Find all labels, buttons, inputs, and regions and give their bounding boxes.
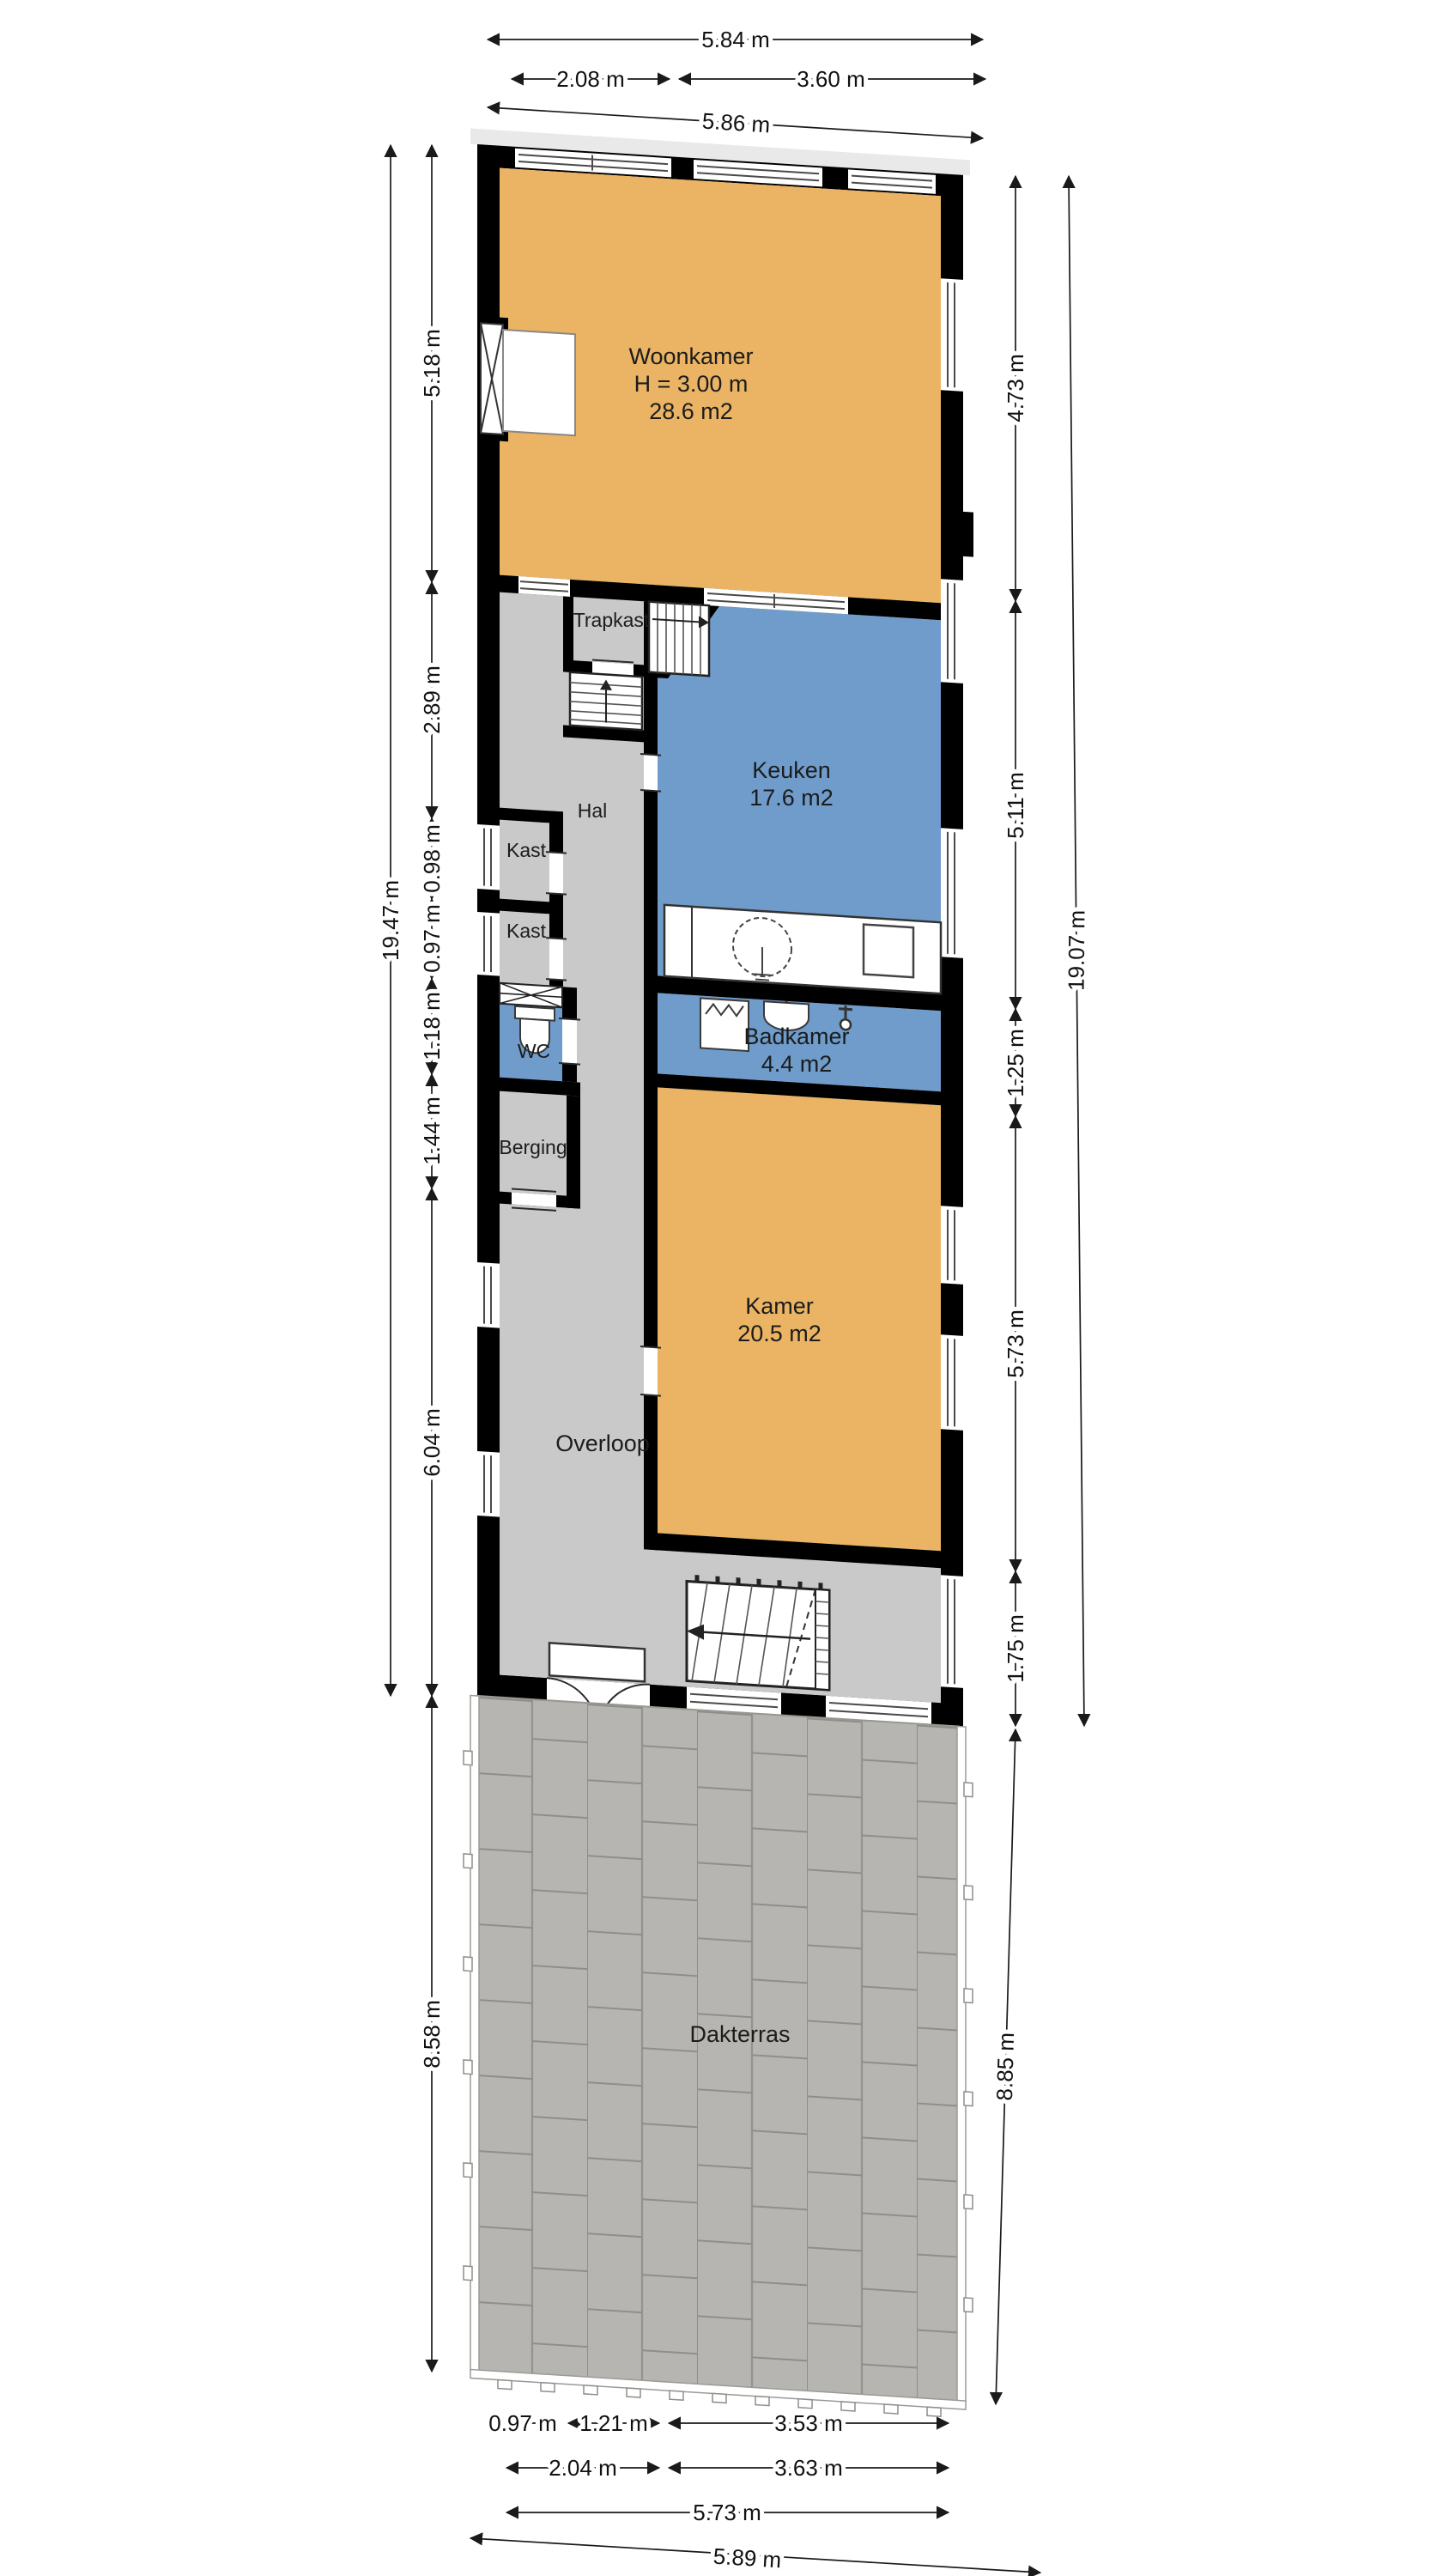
svg-text:3.63 m: 3.63 m bbox=[774, 2455, 843, 2481]
cabinet bbox=[503, 330, 575, 435]
room-kamer bbox=[658, 1087, 941, 1551]
wc-vent-hatch bbox=[500, 983, 562, 1008]
dim-left-overloop: 6.04 m bbox=[419, 1188, 445, 1696]
dim-bottom-seg-1: 0.97 m bbox=[488, 2410, 558, 2436]
chimney-niche bbox=[477, 316, 575, 446]
mat bbox=[549, 1643, 645, 1681]
svg-text:5.18 m: 5.18 m bbox=[419, 329, 445, 398]
svg-text:2.89 m: 2.89 m bbox=[419, 665, 445, 734]
window-right-keuken-1 bbox=[941, 579, 963, 683]
dim-top-overall: 5.84 m bbox=[488, 27, 983, 52]
svg-text:19.47 m: 19.47 m bbox=[378, 880, 403, 961]
dim-right-woonkamer: 4.73 m bbox=[1003, 176, 1028, 601]
dim-right-terrace: 8.85 m bbox=[991, 1729, 1019, 2404]
dim-bottom-seg-3: 3.53 m bbox=[669, 2410, 949, 2436]
dim-left-wc: 1.18 m bbox=[419, 979, 445, 1074]
svg-text:0.97 m: 0.97 m bbox=[488, 2410, 557, 2436]
svg-text:19.07 m: 19.07 m bbox=[1064, 910, 1090, 991]
washer-icon bbox=[700, 998, 749, 1051]
window-right-kamer-2 bbox=[941, 1334, 963, 1431]
svg-text:1.44 m: 1.44 m bbox=[419, 1097, 445, 1165]
window-left-kast-1 bbox=[477, 824, 500, 890]
terrace-floor bbox=[477, 1696, 959, 2403]
label-keuken-area: 17.6 m2 bbox=[749, 785, 834, 811]
window-interior-hal bbox=[518, 576, 570, 597]
dim-top-slanted: 5.86 m bbox=[488, 107, 983, 138]
label-woonkamer-area: 28.6 m2 bbox=[649, 398, 733, 424]
dim-bottom-inner: 5.73 m bbox=[506, 2500, 949, 2525]
dim-right-stairzone: 1.75 m bbox=[1003, 1571, 1028, 1726]
dim-left-woonkamer: 5.18 m bbox=[419, 145, 445, 582]
stairs-down bbox=[687, 1574, 829, 1690]
dim-left-terrace: 8.58 m bbox=[419, 1696, 445, 2372]
label-hal: Hal bbox=[578, 799, 608, 822]
window-left-kast-2 bbox=[477, 912, 500, 976]
svg-text:4.73 m: 4.73 m bbox=[1003, 354, 1028, 422]
floor-plan-page: Woonkamer H = 3.00 m 28.6 m2 Trapkast Ke… bbox=[0, 0, 1449, 2576]
dim-left-hal: 2.89 m bbox=[419, 582, 445, 818]
svg-text:8.85 m: 8.85 m bbox=[991, 2032, 1019, 2101]
dim-bottom-seg-2: 1.21 m bbox=[568, 2410, 659, 2436]
svg-text:5.73 m: 5.73 m bbox=[693, 2500, 761, 2525]
dim-right-badkamer: 1.25 m bbox=[1003, 1009, 1028, 1116]
label-kamer: Kamer bbox=[745, 1293, 814, 1319]
label-woonkamer-height: H = 3.00 m bbox=[634, 371, 749, 397]
label-badkamer-area: 4.4 m2 bbox=[761, 1051, 833, 1077]
window-right-keuken-2 bbox=[941, 828, 963, 958]
label-badkamer: Badkamer bbox=[743, 1024, 849, 1049]
dim-right-overall: 19.07 m bbox=[1064, 176, 1090, 1726]
svg-text:2.04 m: 2.04 m bbox=[549, 2455, 617, 2481]
building-group bbox=[464, 128, 973, 2419]
dim-bottom-seg-5: 3.63 m bbox=[669, 2455, 949, 2481]
svg-text:1.18 m: 1.18 m bbox=[419, 992, 445, 1060]
svg-text:0.97 m: 0.97 m bbox=[419, 904, 445, 973]
stairs-upper bbox=[649, 602, 709, 676]
svg-text:5.86 m: 5.86 m bbox=[701, 108, 771, 138]
label-berging: Berging bbox=[499, 1136, 567, 1158]
dim-top-right-part: 3.60 m bbox=[679, 66, 985, 92]
terrace bbox=[464, 1695, 973, 2419]
label-kast-1: Kast bbox=[506, 839, 547, 861]
dim-right-kamer: 5.73 m bbox=[1003, 1116, 1028, 1571]
dim-top-left-part: 2.08 m bbox=[512, 66, 670, 92]
svg-text:0.98 m: 0.98 m bbox=[419, 824, 445, 893]
stairs-mid bbox=[570, 672, 642, 730]
label-kast-2: Kast bbox=[506, 920, 547, 942]
svg-text:1.75 m: 1.75 m bbox=[1003, 1614, 1028, 1683]
window-left-overloop-1 bbox=[477, 1262, 500, 1328]
svg-text:5.89 m: 5.89 m bbox=[712, 2543, 782, 2573]
label-woonkamer: Woonkamer bbox=[628, 343, 753, 369]
label-trapkast: Trapkast bbox=[573, 609, 650, 631]
floor-plan-drawing: Woonkamer H = 3.00 m 28.6 m2 Trapkast Ke… bbox=[0, 0, 1449, 2576]
dim-left-kast-2: 0.97 m bbox=[419, 899, 445, 979]
dim-right-keuken: 5.11 m bbox=[1003, 601, 1028, 1009]
svg-text:2.08 m: 2.08 m bbox=[556, 66, 625, 92]
label-keuken: Keuken bbox=[752, 757, 831, 783]
svg-text:5.11 m: 5.11 m bbox=[1003, 772, 1028, 839]
svg-text:5.84 m: 5.84 m bbox=[701, 27, 770, 52]
svg-text:1.25 m: 1.25 m bbox=[1003, 1029, 1028, 1097]
svg-text:8.58 m: 8.58 m bbox=[419, 2000, 445, 2069]
window-right-overloop bbox=[941, 1575, 963, 1688]
dim-bottom-overall: 5.89 m bbox=[470, 2538, 1040, 2573]
dim-bottom-seg-4: 2.04 m bbox=[506, 2455, 659, 2481]
svg-text:5.73 m: 5.73 m bbox=[1003, 1309, 1028, 1378]
label-dakterras: Dakterras bbox=[689, 2021, 790, 2047]
dim-left-kast-1: 0.98 m bbox=[419, 818, 445, 899]
svg-text:3.60 m: 3.60 m bbox=[797, 66, 865, 92]
window-left-overloop-2 bbox=[477, 1451, 500, 1517]
svg-text:1.21 m: 1.21 m bbox=[579, 2410, 648, 2436]
svg-text:6.04 m: 6.04 m bbox=[419, 1408, 445, 1477]
label-overloop: Overloop bbox=[555, 1431, 650, 1456]
window-right-woonkamer bbox=[941, 278, 963, 392]
window-right-kamer-1 bbox=[941, 1206, 963, 1285]
label-wc: WC bbox=[518, 1040, 550, 1062]
svg-text:3.53 m: 3.53 m bbox=[774, 2410, 843, 2436]
dim-left-berging: 1.44 m bbox=[419, 1074, 445, 1188]
stove-icon bbox=[864, 925, 913, 978]
label-kamer-area: 20.5 m2 bbox=[737, 1321, 822, 1346]
dim-left-overall: 19.47 m bbox=[378, 145, 403, 1696]
